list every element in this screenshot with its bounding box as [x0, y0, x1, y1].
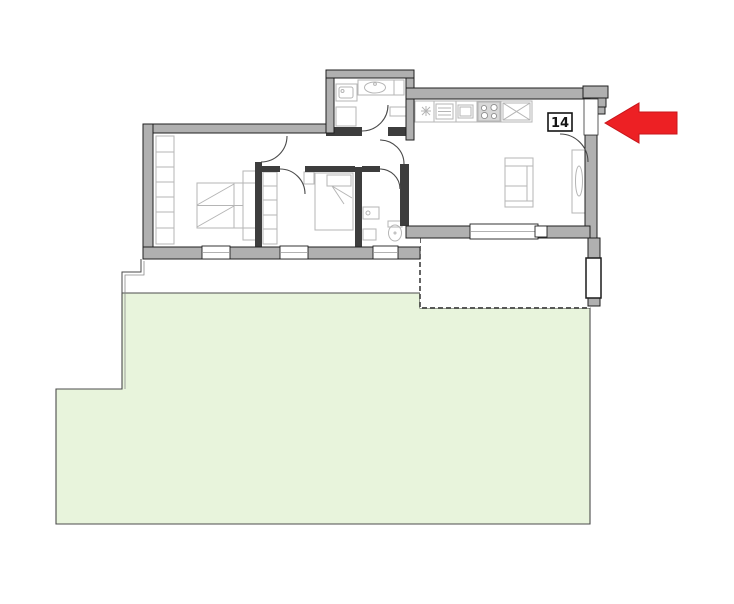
sliding-door-window — [470, 224, 538, 239]
radiator-icon — [572, 150, 586, 213]
entrance-doorway — [584, 99, 598, 135]
terrace — [420, 238, 590, 308]
unit-number-text: 14 — [551, 116, 569, 131]
planter-icon — [586, 258, 601, 298]
window — [280, 246, 308, 259]
window — [373, 246, 398, 259]
floor-plan-canvas: 14 — [0, 0, 734, 604]
floor-plan-page: 14 — [0, 0, 734, 604]
unit-label[interactable]: 14 — [548, 113, 572, 131]
fridge-icon — [421, 106, 431, 116]
selection-arrow-icon[interactable] — [605, 103, 677, 143]
bedroom-block-floor — [143, 124, 420, 259]
stove-icon — [478, 102, 500, 121]
window — [535, 226, 547, 237]
terrace-floor — [420, 238, 590, 308]
garden-polygon — [56, 293, 590, 524]
window — [202, 246, 230, 259]
